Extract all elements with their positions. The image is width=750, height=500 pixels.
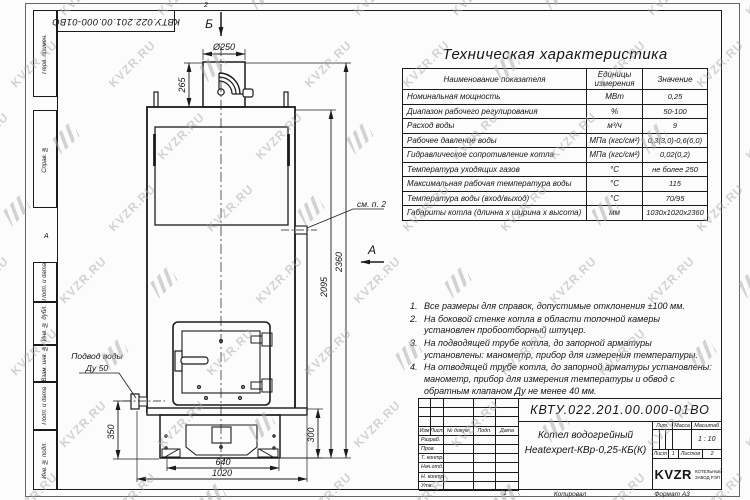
- lit-label: Лит.: [653, 422, 673, 430]
- copied-label: Копировал: [530, 491, 610, 498]
- rev-cell: [496, 454, 519, 463]
- spec-cell-name: Номинальная мощность: [403, 90, 587, 105]
- rev-cell: [431, 399, 444, 408]
- margin-cell-inv-dubl: Инв. № дубл.: [33, 302, 57, 345]
- rev-cell: [474, 473, 496, 482]
- sheet-label: Лист: [653, 450, 669, 459]
- lit-cells: [653, 430, 673, 450]
- sheets-value: 2: [703, 450, 721, 459]
- product-name-line2: Heatexpert-КВр-0,25-КБ(К): [525, 443, 646, 458]
- spec-header-units: Единицы измерения: [587, 69, 643, 90]
- sheets-label: Листов: [679, 450, 704, 459]
- rev-cell: [444, 463, 474, 472]
- rev-cell: [496, 463, 519, 472]
- spec-header-name: Наименование показателя: [403, 69, 587, 90]
- scale-label: Масштаб: [692, 422, 721, 430]
- rev-cell: [444, 436, 474, 445]
- margin-cell-podp-data-1: Подп. и дата: [33, 262, 57, 302]
- kvzr-logo-caption: КОТЕЛЬНЫЙ ЗАВОД РЭП: [695, 469, 723, 480]
- product-name-cell: Котел водогрейный Heatexpert-КВр-0,25-КБ…: [518, 422, 653, 490]
- spec-cell-name: Температура воды (вход/выход): [403, 191, 587, 206]
- rev-cell: [431, 417, 444, 426]
- spec-cell-unit: МВт: [587, 90, 643, 105]
- spec-cell-value: 1030х1020х2360: [643, 206, 708, 221]
- spec-cell-unit: м³/ч: [587, 119, 643, 134]
- spec-row: Гидравлическое сопротивление котлаМПа (к…: [403, 148, 708, 163]
- rev-cell: [444, 417, 474, 426]
- rev-cell: [496, 399, 519, 408]
- kvzr-logo-text: KVZR: [655, 467, 692, 482]
- spec-cell-name: Гидравлическое сопротивление котла: [403, 148, 587, 163]
- spec-row: Температура уходящих газов°Сне более 250: [403, 162, 708, 177]
- rev-cell: [444, 445, 474, 454]
- zone-mark-left: А: [44, 233, 49, 240]
- rev-cell: [419, 408, 431, 417]
- rev-cell: [474, 417, 496, 426]
- margin-label: Инв. № подл.: [42, 442, 48, 479]
- margin-label: Подп. и дата: [42, 263, 48, 301]
- rev-cell: [496, 482, 519, 491]
- sign-row-prov: Пров.: [419, 445, 444, 454]
- doc-number-topleft-box: КВТУ.022.201.00.000-01ВО: [57, 10, 175, 32]
- spec-table: Наименование показателя Единицы измерени…: [402, 68, 708, 221]
- doc-number: КВТУ.022.201.00.000-01ВО: [518, 398, 722, 422]
- rev-header-list: Лист: [431, 427, 444, 436]
- margin-label: Справ. №: [42, 146, 48, 173]
- zone-mark-bottom: 1: [503, 490, 507, 497]
- spec-row: Температура воды (вход/выход)°С70/95: [403, 191, 708, 206]
- spec-cell-value: 0,02(0,2): [643, 148, 708, 163]
- spec-cell-unit: °С: [587, 191, 643, 206]
- spec-cell-unit: мм: [587, 206, 643, 221]
- sign-row-utv: Утв.: [419, 482, 444, 491]
- rev-cell: [496, 436, 519, 445]
- rev-cell: [474, 482, 496, 491]
- spec-cell-unit: МПа (кгс/см²): [587, 148, 643, 163]
- rev-cell: [474, 445, 496, 454]
- mass-label: Масса: [673, 422, 693, 430]
- margin-label: Перв. примен.: [42, 34, 48, 74]
- spec-cell-value: 70/95: [643, 191, 708, 206]
- spec-row: Рабочее давление водыМПа (кгс/см²)0,3(3,…: [403, 133, 708, 148]
- rev-cell: [444, 408, 474, 417]
- note-item: На подводящей трубе котла, до запорной а…: [420, 338, 712, 361]
- sign-row-nachotd: Нач.отд.: [419, 463, 444, 472]
- rev-cell: [496, 473, 519, 482]
- rev-cell: [419, 399, 431, 408]
- margin-cell-sprav-no: Справ. №: [33, 110, 57, 208]
- spec-cell-unit: °С: [587, 177, 643, 192]
- sign-row-tkontr: Т. контр.: [419, 454, 444, 463]
- title-block-right-section: Лит. Масса Масштаб 1 : 10 Лист 1 Листов …: [653, 422, 722, 490]
- rev-cell: [474, 399, 496, 408]
- rev-header-dokum: № докум.: [444, 427, 474, 436]
- spec-cell-name: Рабочее давление воды: [403, 133, 587, 148]
- rev-cell: [474, 454, 496, 463]
- rev-header-izm: Изм: [419, 427, 431, 436]
- spec-cell-value: 115: [643, 177, 708, 192]
- margin-cell-inv-podl: Инв. № подл.: [33, 430, 57, 490]
- spec-cell-name: Габариты котла (длинна х ширина х высота…: [403, 206, 587, 221]
- spec-cell-name: Расход воды: [403, 119, 587, 134]
- company-logo-row: KVZR КОТЕЛЬНЫЙ ЗАВОД РЭП: [653, 459, 721, 490]
- rev-cell: [474, 408, 496, 417]
- rev-cell: [496, 408, 519, 417]
- engineering-drawing-sheet: Ø250 265 350 300 640 1020 2095 2360 Б А …: [0, 0, 750, 500]
- product-name-line1: Котел водогрейный: [538, 428, 633, 443]
- spec-cell-value: не более 250: [643, 162, 708, 177]
- spec-cell-unit: °С: [587, 162, 643, 177]
- margin-cell-podp-data-2: Подп. и дата: [33, 382, 57, 430]
- note-item: На отводящей трубе котла, до запорной ар…: [420, 362, 712, 397]
- spec-header-value: Значение: [643, 69, 708, 90]
- sign-row-nkontr: Н. контр.: [419, 473, 444, 482]
- spec-table-title: Техническая характеристика: [402, 46, 708, 63]
- spec-cell-name: Максимальная рабочая температура воды: [403, 177, 587, 192]
- note-item: Все размеры для справок, допустимые откл…: [420, 301, 712, 313]
- sign-row-razrab: Разраб.: [419, 436, 444, 445]
- rev-cell: [419, 417, 431, 426]
- mass-value: [673, 430, 693, 450]
- rev-cell: [474, 463, 496, 472]
- rev-cell: [496, 445, 519, 454]
- scale-value: 1 : 10: [692, 430, 721, 450]
- spec-table-block: Техническая характеристика Наименование …: [402, 46, 708, 221]
- spec-cell-value: 0,25: [643, 90, 708, 105]
- spec-cell-unit: %: [587, 104, 643, 119]
- format-label: Формат А3: [637, 491, 707, 498]
- margin-label: Инв. № дубл.: [42, 305, 48, 341]
- spec-cell-value: 9: [643, 119, 708, 134]
- spec-cell-name: Диапазон рабочего регулирования: [403, 104, 587, 119]
- logo-caption-line1: КОТЕЛЬНЫЙ: [695, 469, 723, 474]
- rev-cell: [474, 436, 496, 445]
- spec-row: Габариты котла (длинна х ширина х высота…: [403, 206, 708, 221]
- spec-header-row: Наименование показателя Единицы измерени…: [403, 69, 708, 90]
- doc-number-topleft: КВТУ.022.201.00.000-01ВО: [52, 16, 180, 27]
- rev-header-data: Дата: [496, 427, 519, 436]
- revision-grid: Изм Лист № докум. Подп. Дата Разраб. Про…: [418, 398, 518, 490]
- spec-cell-value: 50-100: [643, 104, 708, 119]
- logo-caption-line2: ЗАВОД РЭП: [695, 475, 723, 480]
- note-item: На боковой стенке котла в области топочн…: [420, 314, 712, 337]
- spec-cell-value: 0,3(3,0)-0,6(6,0): [643, 133, 708, 148]
- rev-cell: [444, 399, 474, 408]
- rev-cell: [444, 482, 474, 491]
- sheet-value: 1: [669, 450, 679, 459]
- title-block: Изм Лист № докум. Подп. Дата Разраб. Про…: [418, 398, 722, 490]
- spec-row: Расход водым³/ч9: [403, 119, 708, 134]
- margin-label: Взам. инв. №: [42, 345, 48, 382]
- notes-block: Все размеры для справок, допустимые откл…: [402, 301, 712, 399]
- spec-row: Диапазон рабочего регулирования%50-100: [403, 104, 708, 119]
- spec-cell-name: Температура уходящих газов: [403, 162, 587, 177]
- margin-cell-vzam-inv: Взам. инв. №: [33, 345, 57, 382]
- margin-label: Подп. и дата: [42, 387, 48, 425]
- spec-row: Максимальная рабочая температура воды°С1…: [403, 177, 708, 192]
- spec-cell-unit: МПа (кгс/см²): [587, 133, 643, 148]
- spec-row: Номинальная мощностьМВт0,25: [403, 90, 708, 105]
- rev-cell: [444, 473, 474, 482]
- rev-cell: [496, 417, 519, 426]
- rev-cell: [444, 454, 474, 463]
- rev-header-podp: Подп.: [474, 427, 496, 436]
- rev-cell: [431, 408, 444, 417]
- zone-mark-top: 2: [204, 2, 208, 9]
